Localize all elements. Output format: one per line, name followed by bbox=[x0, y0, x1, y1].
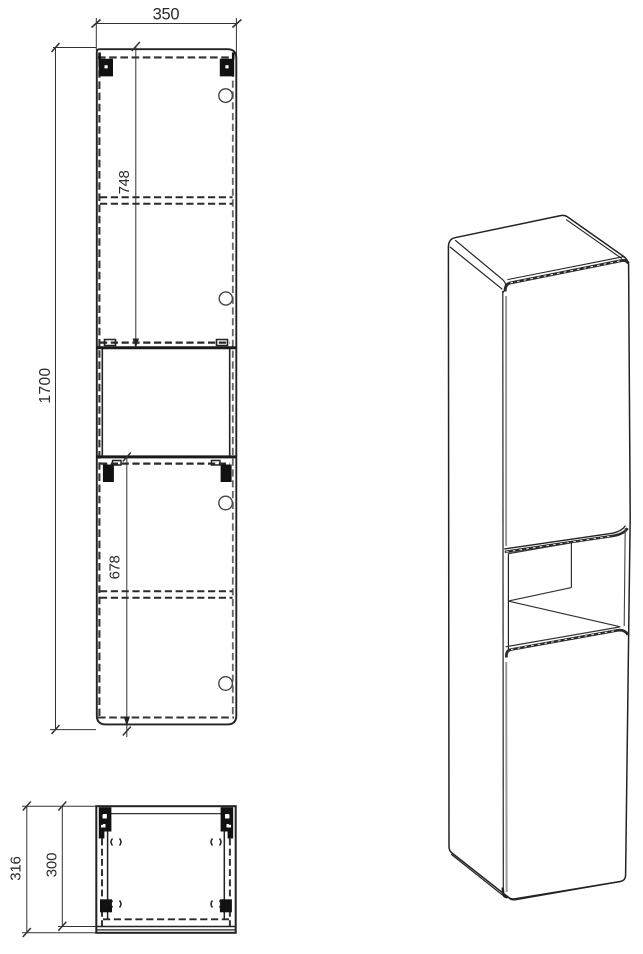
svg-text:316: 316 bbox=[7, 856, 24, 880]
svg-text:678: 678 bbox=[106, 556, 123, 580]
svg-text:350: 350 bbox=[153, 6, 180, 24]
svg-text:748: 748 bbox=[116, 171, 133, 195]
svg-text:300: 300 bbox=[43, 853, 60, 877]
svg-text:1700: 1700 bbox=[37, 367, 54, 403]
